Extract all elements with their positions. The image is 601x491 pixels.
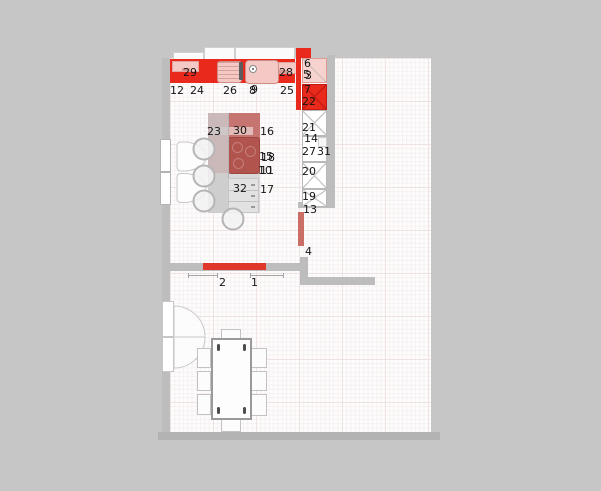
- item-label-22: 22: [302, 96, 316, 107]
- bar-stool[interactable]: [194, 191, 215, 212]
- item-label-2: 2: [219, 277, 226, 288]
- item-label-27: 27: [302, 146, 316, 157]
- bar-stool[interactable]: [194, 139, 215, 160]
- item-label-31: 31: [317, 146, 331, 157]
- dining-chair-left-3[interactable]: [197, 394, 211, 415]
- item-label-20: 20: [302, 166, 316, 177]
- item-label-28: 28: [279, 67, 293, 78]
- item-label-16: 16: [260, 126, 274, 137]
- item-label-4: 4: [305, 246, 312, 257]
- table-corner-mark: [217, 407, 220, 414]
- item-label-11: 11: [260, 165, 274, 176]
- dining-chair-right-3[interactable]: [251, 394, 267, 416]
- item-label-24: 24: [190, 85, 204, 96]
- floorplan-canvas: 2928122426892565372221142731201913423301…: [0, 0, 601, 491]
- item-label-14: 14: [304, 133, 318, 144]
- item-label-9: 9: [251, 84, 258, 95]
- dining-chair-left-1[interactable]: [197, 348, 211, 368]
- item-label-19: 19: [302, 191, 316, 202]
- item-label-23: 23: [207, 126, 221, 137]
- item-label-32: 32: [233, 183, 247, 194]
- bar-stool[interactable]: [223, 209, 244, 230]
- item-label-26: 26: [223, 85, 237, 96]
- item-label-25: 25: [280, 85, 294, 96]
- dining-chair-right-1[interactable]: [251, 348, 267, 368]
- table-corner-mark: [243, 344, 246, 351]
- item-label-12: 12: [170, 85, 184, 96]
- door-swing-arc-top: [174, 306, 205, 337]
- item-label-3: 3: [305, 70, 312, 81]
- dining-chair-bottom[interactable]: [221, 419, 241, 432]
- item-label-29: 29: [183, 67, 197, 78]
- dining-chair-left-2[interactable]: [197, 371, 211, 391]
- item-label-18: 18: [261, 152, 275, 163]
- table-corner-mark: [217, 344, 220, 351]
- item-label-13: 13: [303, 204, 317, 215]
- dining-chair-right-2[interactable]: [251, 371, 267, 391]
- table-corner-mark: [243, 407, 246, 414]
- item-label-17: 17: [260, 184, 274, 195]
- item-label-1: 1: [251, 277, 258, 288]
- item-label-7: 7: [304, 84, 311, 95]
- dining-table[interactable]: [211, 338, 252, 420]
- overlay-shapes: [0, 0, 601, 491]
- item-label-30: 30: [233, 125, 247, 136]
- bar-stool[interactable]: [194, 166, 215, 187]
